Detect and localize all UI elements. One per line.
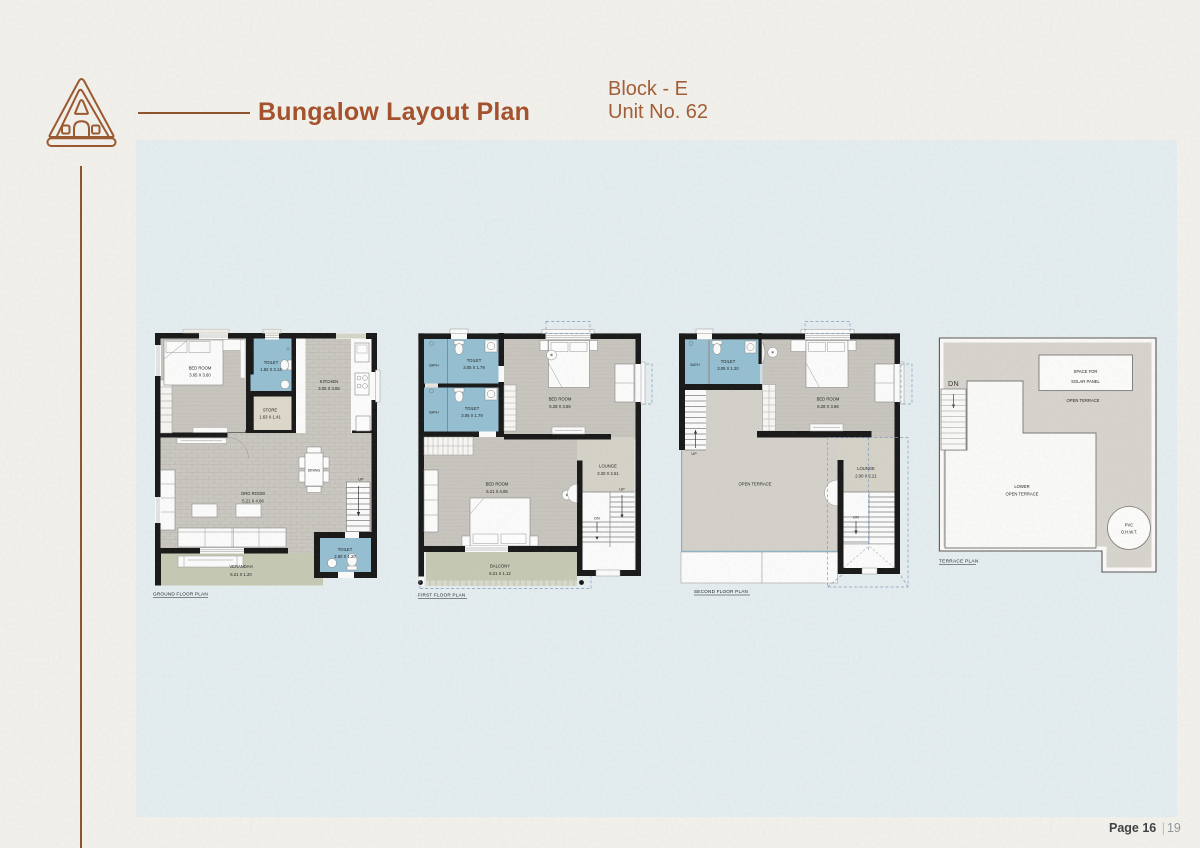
svg-text:3.05 X 1.79: 3.05 X 1.79 xyxy=(463,365,485,370)
svg-text:3.30 X 2.51: 3.30 X 2.51 xyxy=(597,471,619,476)
svg-text:UP: UP xyxy=(691,452,697,456)
svg-text:LOUNGE: LOUNGE xyxy=(599,464,617,469)
svg-text:OPEN TERRACE: OPEN TERRACE xyxy=(1006,492,1039,497)
svg-text:3.05 X 1.20: 3.05 X 1.20 xyxy=(717,366,739,371)
svg-text:BALCONY: BALCONY xyxy=(490,564,510,569)
svg-text:6.28 X 3.66: 6.28 X 3.66 xyxy=(549,404,571,409)
svg-text:SOLAR PANEL: SOLAR PANEL xyxy=(1071,379,1100,384)
svg-text:DN: DN xyxy=(853,516,859,520)
svg-text:OPEN TERRACE: OPEN TERRACE xyxy=(1067,398,1100,403)
svg-text:KITCHEN: KITCHEN xyxy=(320,379,338,384)
svg-text:LOUNGE: LOUNGE xyxy=(857,466,875,471)
svg-text:OPEN TERRACE: OPEN TERRACE xyxy=(739,482,772,487)
svg-text:TOILET: TOILET xyxy=(721,359,736,364)
svg-text:3.05 X 1.79: 3.05 X 1.79 xyxy=(461,413,483,418)
svg-text:SPACE FOR: SPACE FOR xyxy=(1074,369,1098,374)
svg-text:2.60 X 1.20: 2.60 X 1.20 xyxy=(334,554,356,559)
svg-text:TERRACE PLAN: TERRACE PLAN xyxy=(939,559,979,564)
svg-text:6.21 X 4.06: 6.21 X 4.06 xyxy=(486,489,508,494)
svg-text:DN: DN xyxy=(594,517,600,521)
svg-text:GROUND FLOOR PLAN: GROUND FLOOR PLAN xyxy=(153,592,208,597)
svg-text:DINING: DINING xyxy=(308,469,321,473)
svg-text:VERANDAH: VERANDAH xyxy=(229,564,252,569)
svg-text:1.82 X 2.14: 1.82 X 2.14 xyxy=(260,367,282,372)
svg-text:DN: DN xyxy=(948,379,959,388)
svg-text:SECOND FLOOR PLAN: SECOND FLOOR PLAN xyxy=(694,589,748,594)
svg-text:3.05 X 3.65: 3.05 X 3.65 xyxy=(318,386,340,391)
svg-text:3.65 X 3.60: 3.65 X 3.60 xyxy=(189,373,211,378)
svg-text:BATH: BATH xyxy=(429,411,439,415)
svg-text:PVC: PVC xyxy=(1125,523,1133,528)
svg-text:1.63 X 1.41: 1.63 X 1.41 xyxy=(259,415,281,420)
svg-text:6.21 X 1.12: 6.21 X 1.12 xyxy=(489,571,511,576)
svg-text:BED ROOM: BED ROOM xyxy=(486,482,509,487)
svg-text:TOILET: TOILET xyxy=(467,358,482,363)
svg-text:DRG ROOM: DRG ROOM xyxy=(241,491,265,496)
svg-text:BED ROOM: BED ROOM xyxy=(549,397,572,402)
svg-text:TOILET: TOILET xyxy=(465,406,480,411)
svg-text:6.28 X 3.66: 6.28 X 3.66 xyxy=(817,404,839,409)
svg-text:TOILET: TOILET xyxy=(264,360,279,365)
svg-text:LOWER: LOWER xyxy=(1014,484,1029,489)
svg-text:BATH: BATH xyxy=(429,364,439,368)
svg-text:O.H.W.T.: O.H.W.T. xyxy=(1121,530,1137,535)
svg-text:BED ROOM: BED ROOM xyxy=(189,366,212,371)
svg-text:UP: UP xyxy=(358,478,364,482)
svg-text:TOILET: TOILET xyxy=(338,547,353,552)
svg-text:6.21 X 1.20: 6.21 X 1.20 xyxy=(230,572,252,577)
svg-text:BED ROOM: BED ROOM xyxy=(817,397,840,402)
svg-text:5.21 X 4.06: 5.21 X 4.06 xyxy=(242,499,264,504)
svg-text:FIRST FLOOR PLAN: FIRST FLOOR PLAN xyxy=(418,593,465,598)
svg-text:UP: UP xyxy=(619,488,625,492)
svg-text:2.00 X 2.21: 2.00 X 2.21 xyxy=(855,474,877,479)
svg-text:BATH: BATH xyxy=(690,363,700,367)
svg-text:STORE: STORE xyxy=(263,408,278,413)
